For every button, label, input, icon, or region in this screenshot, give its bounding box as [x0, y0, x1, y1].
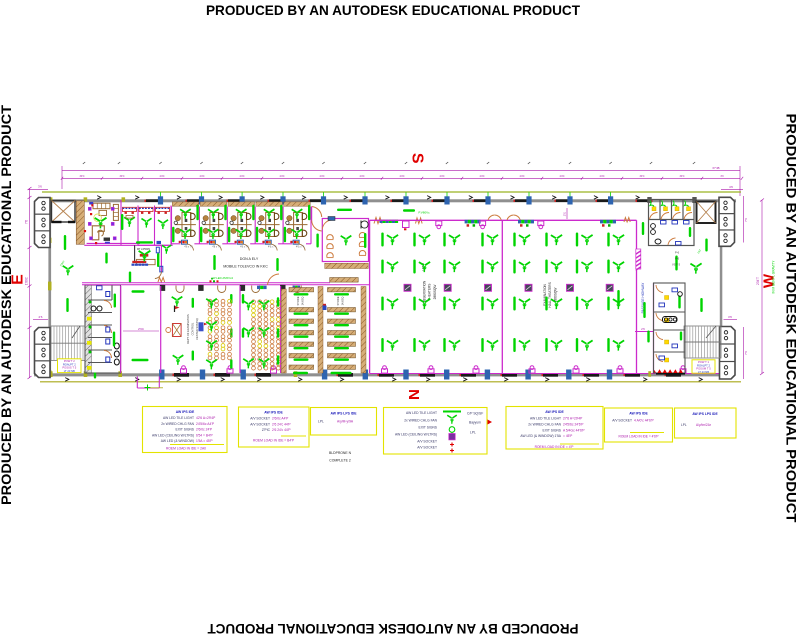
svg-text:ROEM LOAD IN IDE = 4'6'P: ROEM LOAD IN IDE = 4'6'P: [619, 435, 659, 439]
svg-text:A/y/Im/2Ar: A/y/Im/2Ar: [696, 423, 712, 427]
svg-text:AW IPS LPS IDE: AW IPS LPS IDE: [692, 412, 718, 416]
svg-text:EXIT SIGNS: EXIT SIGNS: [543, 428, 562, 432]
svg-text:27'6 A=29'4P: 27'6 A=29'4P: [563, 417, 583, 421]
svg-text:A/V SOCKET: A/V SOCKET: [250, 422, 270, 426]
svg-text:Z'PIC: Z'PIC: [262, 428, 271, 432]
svg-text:ROEM LOAD IN IDE = 4'P: ROEM LOAD IN IDE = 4'P: [535, 445, 575, 449]
svg-text:A/V SOCKET: A/V SOCKET: [250, 417, 270, 421]
svg-text:2'6 24'c 44'P: 2'6 24'c 44'P: [272, 428, 291, 432]
svg-text:1'5J: 1'5J: [564, 211, 567, 216]
svg-text:AW LED TILE LIGHT: AW LED TILE LIGHT: [406, 411, 437, 415]
svg-text:A/V SOCKET: A/V SOCKET: [612, 419, 632, 423]
svg-text:4'2C: 4'2C: [319, 175, 324, 178]
svg-text:4'2C: 4'2C: [279, 175, 284, 178]
svg-text:AW IPS IDE: AW IPS IDE: [176, 410, 195, 414]
svg-text:OBSERVATION: OBSERVATION: [423, 280, 427, 303]
svg-text:2880SQW: 2880SQW: [433, 285, 437, 300]
svg-text:4 A/0'c 44'6'P: 4 A/0'c 44'6'P: [634, 419, 654, 423]
svg-text:EXIT SIGNS: EXIT SIGNS: [419, 426, 438, 430]
svg-text:AW LED A5/6Vc4: AW LED A5/6Vc4: [211, 276, 233, 280]
svg-text:PRODUCED BY AN AUTODESK EDUCAT: PRODUCED BY AN AUTODESK EDUCATIONAL PROD…: [0, 105, 14, 505]
svg-text:N: N: [405, 389, 422, 400]
svg-text:30'C: 30'C: [119, 175, 124, 178]
svg-text:4'6 x 7'6: 4'6 x 7'6: [212, 247, 221, 249]
svg-text:67'4B: 67'4B: [712, 166, 719, 170]
svg-text:4'6 x 7'6: 4'6 x 7'6: [268, 247, 277, 249]
svg-text:AW LED (CEILING W/LTRS): AW LED (CEILING W/LTRS): [152, 433, 194, 437]
svg-text:2x WIRED CHLG FAN: 2x WIRED CHLG FAN: [161, 422, 194, 426]
svg-text:BLDPRONE N: BLDPRONE N: [329, 451, 352, 455]
svg-text:24'5/6c A4'P: 24'5/6c A4'P: [196, 422, 215, 426]
svg-text:PRODUCED BY AN AUTODESK EDUCAT: PRODUCED BY AN AUTODESK EDUCATIONAL PROD…: [206, 2, 580, 18]
svg-text:4'2C: 4'2C: [519, 175, 524, 178]
svg-text:AW IPS IDE: AW IPS IDE: [545, 410, 564, 414]
svg-text:4'6 x 7'6: 4'6 x 7'6: [240, 247, 249, 249]
svg-text:MT L/P5/RN: MT L/P5/RN: [137, 248, 150, 251]
svg-text:AW LED (& WINDOW) 1'5A: AW LED (& WINDOW) 1'5A: [520, 434, 561, 438]
svg-text:3'6: 3'6: [38, 185, 42, 189]
svg-text:MOBILE TOLEVCO IN KKC: MOBILE TOLEVCO IN KKC: [223, 265, 268, 269]
svg-text:THEATERS: THEATERS: [428, 284, 432, 301]
svg-text:2'6C: 2'6C: [138, 327, 145, 331]
svg-text:P-6: P-6: [675, 251, 680, 255]
svg-text:S: S: [408, 153, 425, 164]
svg-text:4'2C: 4'2C: [599, 175, 604, 178]
svg-text:COMPLETE 2: COMPLETE 2: [329, 459, 351, 463]
svg-text:4'2C: 4'2C: [359, 175, 364, 178]
svg-text:IN M BENT'L GRAVITY: IN M BENT'L GRAVITY: [772, 260, 776, 294]
svg-text:= 45'P: = 45'P: [563, 434, 573, 438]
svg-text:4'2C: 4'2C: [479, 175, 484, 178]
svg-text:2'6: 2'6: [39, 315, 43, 319]
svg-text:4'2C: 4'2C: [239, 175, 244, 178]
svg-text:ROEM LOAD IN IDE = 2A0: ROEM LOAD IN IDE = 2A0: [166, 447, 206, 451]
svg-text:3'0: 3'0: [720, 175, 724, 178]
svg-text:4'6 x 7'6: 4'6 x 7'6: [184, 247, 193, 249]
svg-text:DGN A ELY: DGN A ELY: [240, 257, 259, 261]
svg-text:6'54 = B4'P: 6'54 = B4'P: [196, 433, 214, 437]
svg-text:ROEM LOAD IN IDE = B4'P: ROEM LOAD IN IDE = B4'P: [253, 439, 295, 443]
svg-text:3'6: 3'6: [728, 315, 732, 319]
svg-text:2'6/0c A4'P: 2'6/0c A4'P: [272, 417, 289, 421]
svg-text:4'6 x 7'6: 4'6 x 7'6: [296, 247, 305, 249]
svg-text:CENTER 978.6SQ: CENTER 978.6SQ: [195, 318, 199, 340]
svg-text:HALL THEATERS: HALL THEATERS: [548, 282, 552, 307]
svg-text:PRODUCED BY AN AUTODESK EDUCAT: PRODUCED BY AN AUTODESK EDUCATIONAL PROD…: [784, 114, 800, 523]
svg-text:C/P SQ/SF: C/P SQ/SF: [467, 412, 483, 416]
svg-text:7'6: 7'6: [744, 351, 748, 355]
svg-text:24'5/6c 24'6'P: 24'5/6c 24'6'P: [563, 422, 584, 426]
svg-text:A/V SOCKET: A/V SOCKET: [417, 446, 437, 450]
svg-text:30'C: 30'C: [79, 175, 84, 178]
svg-text:2'8T: 2'8T: [696, 248, 702, 255]
svg-text:VS T-3: VS T-3: [672, 263, 680, 267]
svg-text:2x WIRED CHLG FAN: 2x WIRED CHLG FAN: [528, 422, 561, 426]
svg-text:4'2C: 4'2C: [199, 175, 204, 178]
svg-text:A 5/4Gc 44'6'P: A 5/4Gc 44'6'P: [563, 428, 585, 432]
svg-text:AW LED (& WINDOW): AW LED (& WINDOW): [161, 439, 194, 443]
svg-text:LPL: LPL: [318, 420, 324, 424]
svg-text:LT 23 NB: LT 23 NB: [698, 370, 709, 374]
svg-text:AW LED TILE LIGHT: AW LED TILE LIGHT: [163, 416, 194, 420]
svg-text:STORE: STORE: [336, 296, 340, 305]
svg-text:LPL: LPL: [681, 423, 687, 427]
svg-text:7'6: 7'6: [24, 220, 28, 224]
svg-text:7'6: 7'6: [744, 218, 748, 222]
svg-text:1'5A = 45'P: 1'5A = 45'P: [196, 439, 213, 443]
svg-text:2'80T: 2'80T: [59, 259, 66, 267]
svg-text:AW IPS IDE: AW IPS IDE: [264, 411, 283, 415]
svg-text:4'2C: 4'2C: [439, 175, 444, 178]
svg-text:P-6: P-6: [675, 257, 680, 261]
svg-text:DEPT OF EXAMINATION: DEPT OF EXAMINATION: [186, 314, 190, 344]
svg-text:A/V SOCKET: A/V SOCKET: [417, 440, 437, 444]
svg-text:AW IPS LPS IDE: AW IPS LPS IDE: [331, 412, 358, 416]
svg-text:LT 23 NB: LT 23 NB: [64, 369, 75, 373]
svg-text:EXIT SIGNS: EXIT SIGNS: [176, 428, 195, 432]
svg-text:1'80C: 1'80C: [24, 276, 28, 285]
svg-text:2'6: 2'6: [641, 327, 645, 331]
svg-text:4'6: 4'6: [729, 185, 733, 189]
svg-text:STORE: STORE: [296, 296, 300, 305]
svg-text:30'C: 30'C: [639, 175, 644, 178]
svg-text:PRODUCED BY AN AUTODESK EDUCAT: PRODUCED BY AN AUTODESK EDUCATIONAL PROD…: [207, 621, 578, 637]
svg-text:LPL: LPL: [470, 431, 476, 435]
svg-text:Bayyum: Bayyum: [469, 421, 481, 425]
svg-text:2'6/0c 24'P: 2'6/0c 24'P: [196, 428, 213, 432]
svg-text:P.V80Vc: P.V80Vc: [418, 210, 430, 214]
svg-text:234'T: 234'T: [756, 277, 760, 285]
svg-text:4'2C: 4'2C: [399, 175, 404, 178]
svg-text:A/y/M-y/9A: A/y/M-y/9A: [337, 420, 354, 424]
svg-text:AW LED TILE LIGHT: AW LED TILE LIGHT: [530, 417, 561, 421]
svg-text:4'2C: 4'2C: [159, 175, 164, 178]
svg-text:14.6SQ: 14.6SQ: [301, 297, 305, 306]
svg-text:AW LED (CEILING W/LTRS): AW LED (CEILING W/LTRS): [395, 433, 437, 437]
svg-text:4'2C: 4'2C: [559, 175, 564, 178]
svg-text:14.6SQ: 14.6SQ: [341, 297, 345, 306]
svg-text:2'6 24'c 44'P: 2'6 24'c 44'P: [272, 422, 291, 426]
svg-text:AW IPS IDE: AW IPS IDE: [629, 412, 648, 416]
svg-text:CONTROL: CONTROL: [191, 322, 195, 335]
svg-text:30'C: 30'C: [679, 175, 684, 178]
svg-text:2x WIRED CHLG FAN: 2x WIRED CHLG FAN: [404, 419, 437, 423]
svg-text:42'6 A=29'4P: 42'6 A=29'4P: [196, 416, 216, 420]
